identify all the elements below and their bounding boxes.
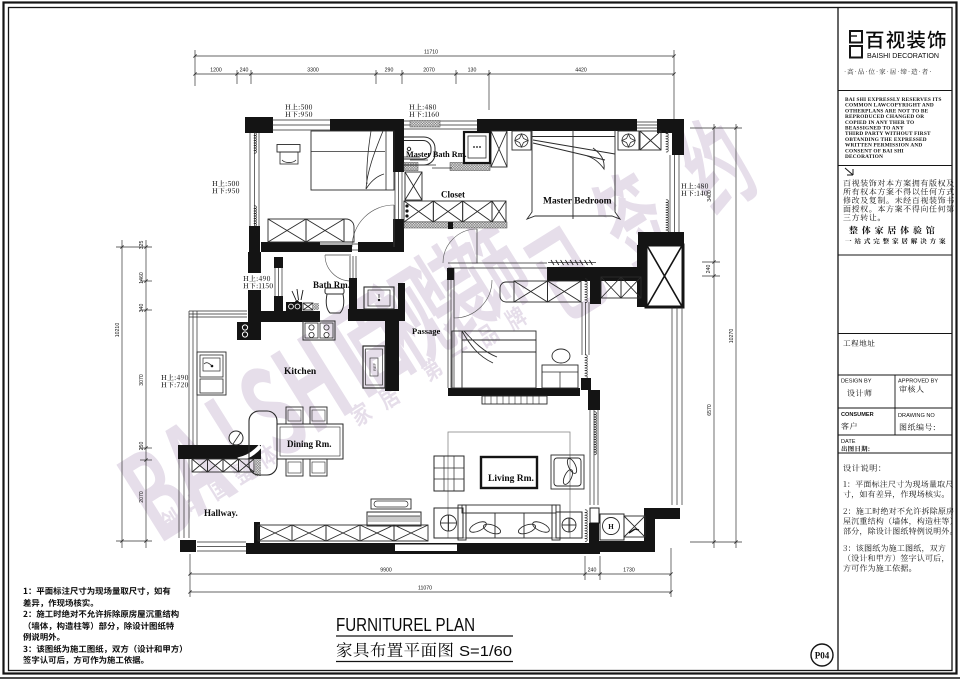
svg-text:240: 240	[240, 68, 249, 74]
svg-text:Passage: Passage	[412, 326, 441, 336]
svg-text:Master Bedroom: Master Bedroom	[543, 197, 612, 207]
svg-text:S=1/60: S=1/60	[459, 644, 512, 660]
svg-text:340: 340	[139, 304, 145, 313]
svg-text:REF: REF	[372, 362, 377, 371]
svg-text:240: 240	[706, 265, 712, 274]
svg-text:290: 290	[385, 68, 394, 74]
svg-text:2070: 2070	[423, 68, 435, 74]
svg-text:Bath Rm.: Bath Rm.	[313, 280, 350, 290]
svg-text:9900: 9900	[380, 568, 392, 574]
svg-text:Dining Rm.: Dining Rm.	[287, 439, 332, 449]
svg-text:11070: 11070	[418, 586, 432, 592]
svg-text:240: 240	[588, 568, 597, 574]
svg-text:1730: 1730	[623, 568, 635, 574]
svg-text:4420: 4420	[575, 68, 587, 74]
svg-text:6570: 6570	[707, 404, 713, 416]
svg-text:Closet: Closet	[441, 190, 465, 200]
svg-text:250: 250	[139, 442, 145, 451]
svg-text:1200: 1200	[210, 68, 222, 74]
svg-text:2070: 2070	[139, 491, 145, 503]
svg-text:130: 130	[468, 68, 477, 74]
svg-text:CONSUMER: CONSUMER	[841, 412, 874, 418]
svg-text:3300: 3300	[307, 68, 319, 74]
svg-text:11710: 11710	[424, 50, 438, 56]
svg-text:DESIGN BY: DESIGN BY	[841, 379, 872, 385]
svg-text:325: 325	[139, 241, 145, 250]
svg-text:3070: 3070	[139, 374, 145, 386]
svg-text:H: H	[608, 523, 614, 531]
svg-text:Hallway.: Hallway.	[204, 508, 238, 518]
svg-text:BAISHI DECORATION: BAISHI DECORATION	[867, 51, 939, 60]
svg-text:10270: 10270	[729, 329, 735, 344]
svg-text:Master Bath Rm.: Master Bath Rm.	[406, 150, 467, 159]
svg-text:Living Rm.: Living Rm.	[488, 474, 534, 484]
svg-text:10210: 10210	[115, 323, 121, 338]
svg-text:DRAWING NO: DRAWING NO	[898, 413, 935, 419]
svg-text:DATE: DATE	[841, 439, 856, 445]
svg-text:APPROVED BY: APPROVED BY	[898, 379, 938, 385]
svg-text:3400: 3400	[707, 190, 713, 202]
svg-text:FURNITUREL PLAN: FURNITUREL PLAN	[336, 614, 475, 635]
svg-text:Kitchen: Kitchen	[284, 367, 317, 377]
svg-text:DECORATION: DECORATION	[845, 154, 883, 160]
svg-text:P04: P04	[815, 651, 830, 661]
svg-text:1460: 1460	[139, 272, 145, 284]
